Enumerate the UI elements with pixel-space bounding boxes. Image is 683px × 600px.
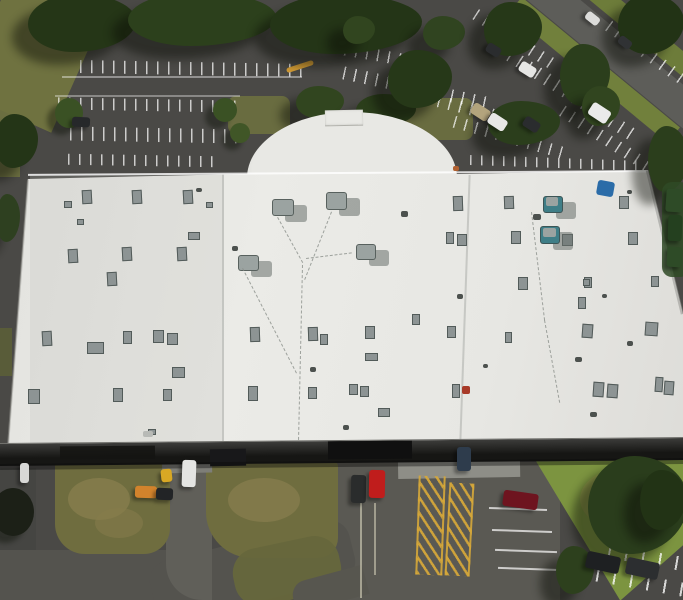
- car-dark: [351, 475, 366, 503]
- skylight: [619, 196, 629, 209]
- skylight: [177, 247, 188, 262]
- skylight: [365, 353, 378, 361]
- skylight: [365, 326, 375, 339]
- skylight: [206, 202, 213, 208]
- skylight: [592, 382, 604, 398]
- skylight: [645, 322, 659, 337]
- skylight: [607, 384, 619, 399]
- skylight: [163, 389, 172, 401]
- skylight: [664, 381, 675, 396]
- dock-dark: [60, 446, 155, 460]
- skylight: [68, 249, 79, 264]
- hvac-cap: [543, 228, 556, 237]
- skylight: [518, 277, 528, 290]
- skylight: [378, 408, 390, 417]
- skylight: [132, 190, 143, 205]
- roof-dome-tab: [325, 110, 363, 126]
- forklift-yellow: [160, 468, 172, 482]
- skylight: [654, 377, 663, 393]
- curb-line: [360, 503, 362, 598]
- skylight: [505, 332, 512, 343]
- bush: [213, 98, 237, 122]
- lane-line: [62, 76, 302, 78]
- skylight: [452, 384, 460, 398]
- roof-seam: [222, 174, 224, 446]
- skylight: [64, 201, 72, 208]
- roof-mark: [627, 190, 632, 194]
- car-dark: [156, 488, 173, 501]
- truck-green: [665, 188, 683, 212]
- skylight: [360, 386, 369, 397]
- roof-left-tint: [30, 174, 222, 446]
- car-orange: [135, 486, 157, 499]
- hatch-zone: [445, 482, 475, 576]
- blue-unit: [596, 180, 615, 198]
- aerial-photo: [0, 0, 683, 600]
- skylight: [153, 330, 164, 343]
- skylight: [87, 342, 104, 354]
- skylight: [123, 331, 132, 344]
- skylight: [167, 333, 178, 345]
- skylight: [412, 314, 420, 325]
- roof-mark: [310, 367, 316, 372]
- skylight: [349, 384, 358, 395]
- hvac-unit: [326, 192, 347, 210]
- skylight: [172, 367, 185, 378]
- skylight: [183, 190, 194, 205]
- truck-green: [668, 215, 683, 241]
- skylight: [504, 196, 514, 209]
- roof-mark: [343, 425, 349, 430]
- skylight: [446, 232, 454, 244]
- bush: [230, 123, 250, 143]
- hatch-zone: [415, 476, 445, 576]
- skylight: [583, 279, 590, 286]
- skylight: [628, 232, 638, 245]
- van-white: [182, 460, 197, 487]
- roof-smudge: [143, 431, 153, 437]
- roof-mark: [483, 364, 488, 368]
- roof-mark: [590, 412, 597, 417]
- skylight: [582, 324, 594, 339]
- truck-dock: [457, 447, 471, 471]
- skylight: [578, 297, 586, 309]
- hvac-unit: [272, 199, 294, 216]
- car-red: [369, 470, 385, 498]
- hvac-unit: [356, 244, 376, 260]
- skylight: [188, 232, 200, 240]
- skylight: [28, 389, 40, 404]
- tree: [640, 470, 683, 530]
- roof-mark: [602, 294, 607, 298]
- skylight: [77, 219, 84, 225]
- lane-line: [55, 95, 240, 97]
- skylight: [308, 327, 318, 341]
- grass-patch: [228, 478, 300, 522]
- roof-smudge: [453, 166, 459, 171]
- skylight: [320, 334, 328, 345]
- skylight: [562, 234, 573, 246]
- skylight: [250, 327, 261, 342]
- grass-left-mid: [0, 328, 12, 376]
- skylight: [113, 388, 123, 402]
- roof-mark: [533, 214, 541, 220]
- skylight: [42, 331, 53, 347]
- car-dark: [72, 117, 90, 128]
- roof-mark: [457, 294, 463, 299]
- skylight: [511, 231, 521, 244]
- red-box: [462, 386, 470, 394]
- hvac-cap: [546, 197, 558, 206]
- hvac-unit: [238, 255, 259, 271]
- skylight: [107, 272, 118, 287]
- roof-mark: [196, 188, 202, 192]
- skylight: [651, 276, 659, 287]
- skylight: [453, 196, 464, 211]
- grass-patch: [95, 508, 143, 538]
- skylight: [82, 190, 93, 205]
- roof-mark: [627, 341, 633, 346]
- skylight: [457, 234, 467, 246]
- skylight: [447, 326, 456, 338]
- curb-line: [374, 503, 376, 575]
- truck-green: [666, 247, 682, 268]
- truck-white-small: [20, 463, 29, 483]
- roof-mark: [401, 211, 408, 217]
- parking-markings: [70, 127, 242, 144]
- skylight: [248, 386, 258, 401]
- skylight: [308, 387, 317, 399]
- roof-mark: [575, 357, 582, 362]
- skylight: [122, 247, 133, 262]
- roof-mark: [232, 246, 238, 251]
- dock-recess: [328, 441, 412, 460]
